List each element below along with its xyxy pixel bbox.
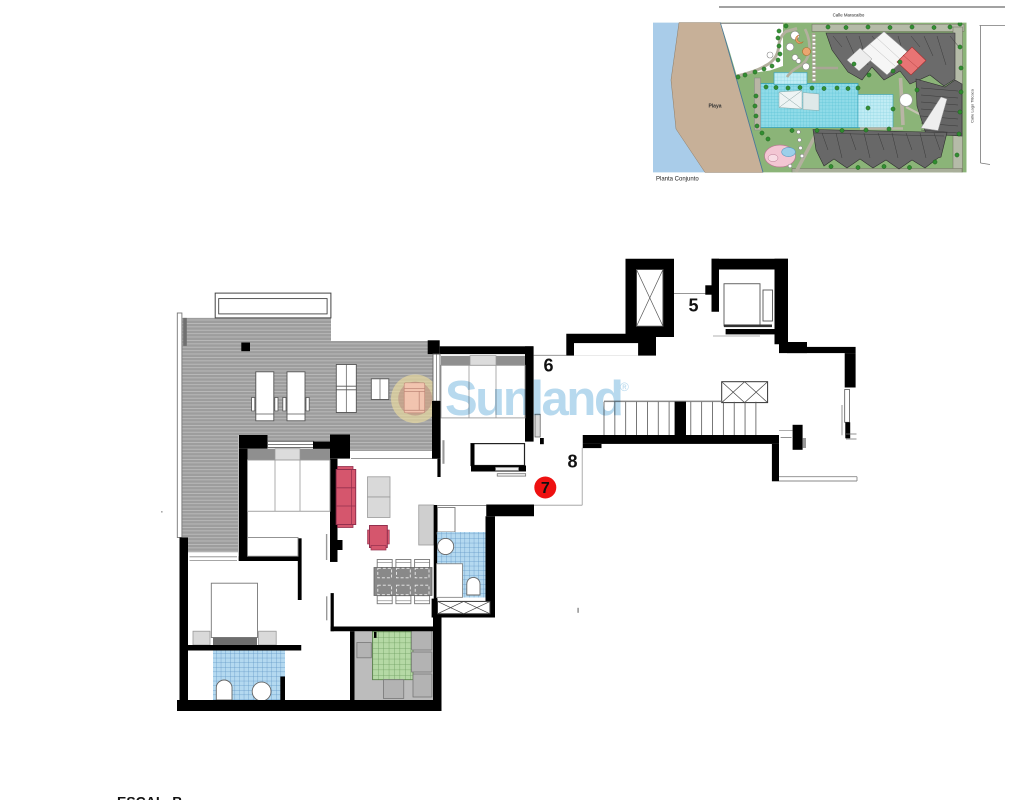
svg-text:5: 5	[688, 296, 698, 316]
svg-text:Planta Conjunto: Planta Conjunto	[656, 177, 699, 183]
svg-text:ESCAL. B: ESCAL. B	[117, 794, 182, 800]
svg-text:8: 8	[567, 452, 577, 472]
svg-text:Calle Lago Titicaca: Calle Lago Titicaca	[970, 88, 975, 123]
svg-text:®: ®	[620, 380, 629, 394]
svg-text:Sunland: Sunland	[445, 372, 621, 426]
svg-text:7: 7	[541, 480, 550, 497]
svg-text:Calle Maracaibo: Calle Maracaibo	[833, 13, 865, 18]
svg-text:Playa: Playa	[708, 104, 721, 110]
